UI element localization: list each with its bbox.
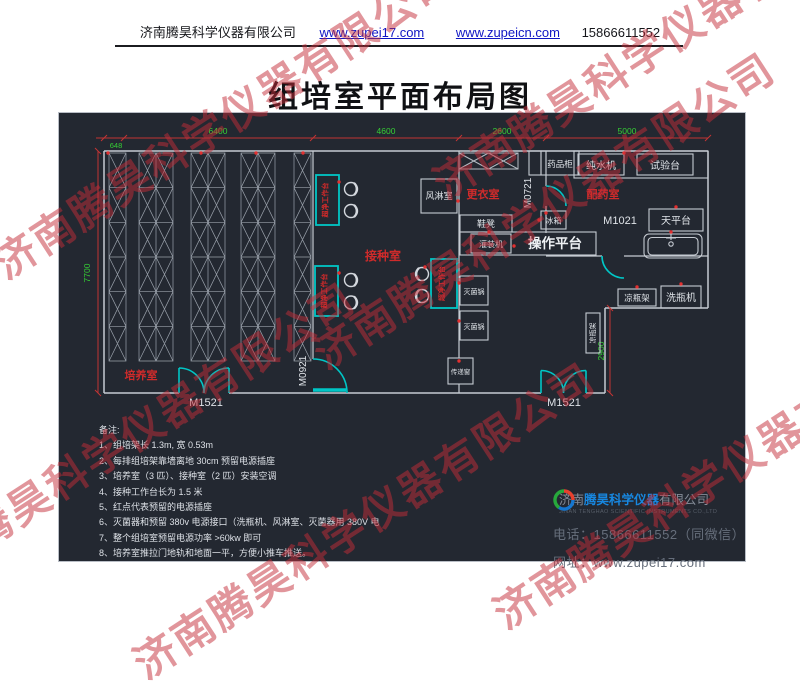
bottle-rack-label: 凉瓶架 — [624, 293, 650, 303]
work-platform-label: 操作平台 — [528, 235, 582, 251]
dim-4600: 4600 — [377, 126, 396, 136]
dim-6400: 6400 — [209, 126, 228, 136]
note-item-3: 3、培养室（3 匹）、接种室（2 匹）安装空调 — [99, 469, 444, 483]
room-culture-label: 培养室 — [125, 368, 158, 382]
outer-walls — [104, 151, 708, 393]
note-item-6: 6、灭菌器和预留 380v 电源接口（洗瓶机、风淋室、灭菌器用 380V 电 — [99, 515, 444, 529]
note-item-5: 5、红点代表预留的电源插座 — [99, 500, 444, 514]
door-labels: M1521 M1521 M0921 M0721 M1021 — [189, 177, 637, 409]
dim-5000: 5000 — [618, 126, 637, 136]
dim-2600: 2600 — [493, 126, 512, 136]
note-item-7: 7、整个组培室预留电源功率 >60kw 即可 — [99, 531, 444, 545]
medicine-cabinet-label: 药品柜 — [547, 159, 573, 169]
culture-rack-shelving — [109, 153, 311, 361]
dim-7700: 7700 — [82, 263, 92, 282]
room-changing-label: 更衣室 — [467, 187, 500, 201]
door-m0721 — [546, 186, 566, 206]
sink-basin — [648, 238, 698, 256]
floorplan-panel: 648 6400 4600 2600 5000 7700 2900 超净工作台 … — [58, 112, 746, 562]
header-phone: 15866611552 — [582, 25, 661, 40]
footer-web-url: www.zupei17.com — [594, 555, 706, 570]
page-header: 济南腾昊科学仪器有限公司 www.zupei17.com www.zupeicn… — [0, 22, 800, 41]
footer-phone-row: 电话：15866611552（同微信） — [553, 524, 743, 543]
dim-648: 648 — [110, 141, 123, 150]
page-title: 组培室平面布局图 — [0, 72, 800, 116]
filling-machine-label: 灌装机 — [479, 239, 503, 249]
shoe-bench-label: 鞋凳 — [477, 218, 495, 229]
note-item-1: 1、组培架长 1.3m, 宽 0.53m — [99, 438, 444, 452]
air-shower-label: 风淋室 — [425, 190, 452, 201]
dim-2900: 2900 — [596, 341, 606, 360]
changing-room-cabinet-hatch — [459, 153, 518, 169]
door-m0921-label: M0921 — [298, 355, 309, 386]
door-m0721-label: M0721 — [523, 177, 534, 208]
door-m1521-left — [179, 368, 229, 393]
small-cabinet-box — [529, 151, 541, 175]
header-link-zupei17[interactable]: www.zupei17.com — [319, 25, 424, 40]
test-bench-label: 试验台 — [650, 159, 680, 172]
door-m1021-label: M1021 — [603, 215, 637, 227]
room-inoculation-label: 接种室 — [365, 248, 401, 263]
note-item-4: 4、接种工作台长为 1.5 米 — [99, 485, 444, 499]
clean-bench-1-label: 超净工作台 — [321, 183, 330, 218]
company-logo-icon — [553, 489, 575, 511]
door-m1521-right-label: M1521 — [547, 397, 581, 409]
door-m1521-right — [541, 371, 586, 394]
door-m1521-left-label: M1521 — [189, 397, 223, 409]
dimension-lines — [95, 135, 711, 396]
header-divider — [115, 45, 683, 47]
clean-bench-2-label: 超净工作台 — [320, 274, 329, 309]
header-company: 济南腾昊科学仪器有限公司 — [140, 25, 296, 40]
door-m0921 — [313, 359, 347, 393]
faucet-icon-knob — [669, 242, 673, 246]
notes-title: 备注: — [99, 423, 444, 437]
stools — [345, 183, 429, 310]
interior-walls — [313, 151, 708, 393]
footer-company-name-en: JINAN TENGHAO SCIENTIFIC INSTRUMENTS CO.… — [559, 509, 717, 515]
pass-window-label: 传递窗 — [451, 367, 471, 376]
header-link-zupeicn[interactable]: www.zupeicn.com — [456, 25, 560, 40]
fridge-label: 冰箱 — [546, 216, 562, 226]
water-purifier-label: 纯水机 — [586, 159, 616, 172]
bottle-rack-vertical-label: 凉瓶架 — [588, 323, 597, 344]
footer-phone-number: 15866611552（同微信） — [594, 527, 746, 542]
equipment — [421, 151, 708, 384]
door-m1021 — [602, 256, 624, 278]
footer-web-row: 网址：www.zupei17.com — [553, 552, 743, 571]
room-dispensing-label: 配药室 — [587, 187, 620, 201]
clean-bench-3-label: 超净工作台 — [437, 266, 446, 301]
notes-block: 备注: 1、组培架长 1.3m, 宽 0.53m 2、每排组培架靠墙离地 30c… — [99, 423, 444, 562]
balance-table-label: 天平台 — [661, 214, 691, 227]
sterilizer-2-label: 灭菌锅 — [464, 322, 485, 331]
sterilizer-1-label: 灭菌锅 — [464, 287, 485, 296]
note-item-2: 2、每排组培架靠墙离地 30cm 预留电源插座 — [99, 454, 444, 468]
note-item-8: 8、培养室推拉门地轨和地面一平，方便小推车推送。 — [99, 546, 444, 560]
footer-company-name: 济南腾昊科学仪器有限公司 — [559, 489, 717, 508]
bottle-washer-label: 洗瓶机 — [666, 291, 696, 304]
footer-brand-block: 济南腾昊科学仪器有限公司 JINAN TENGHAO SCIENTIFIC IN… — [553, 489, 743, 571]
